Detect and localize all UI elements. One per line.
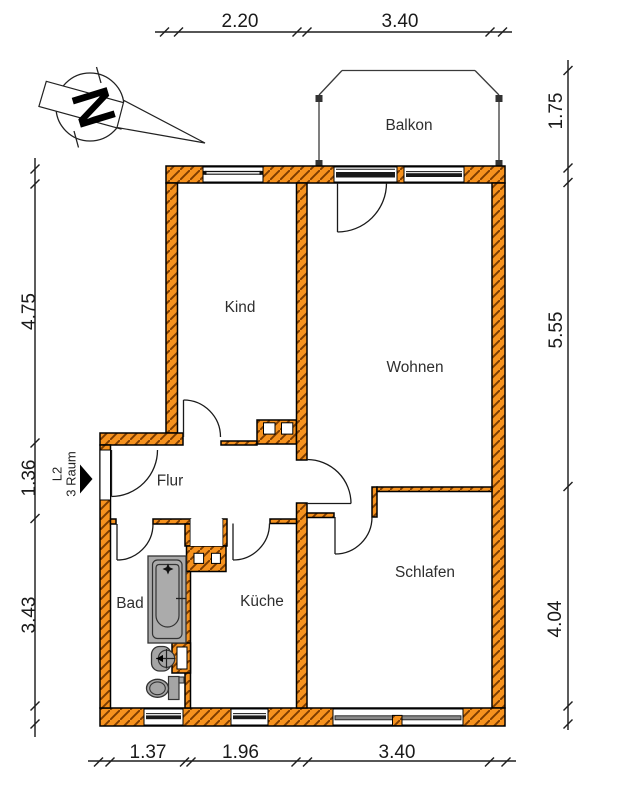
svg-text:Balkon: Balkon [385, 117, 432, 134]
svg-text:Wohnen: Wohnen [386, 359, 443, 376]
svg-text:4.75: 4.75 [19, 293, 40, 330]
svg-text:1.36: 1.36 [19, 460, 40, 497]
svg-text:3.43: 3.43 [19, 597, 40, 634]
svg-text:2.20: 2.20 [222, 11, 259, 32]
svg-text:Küche: Küche [240, 593, 284, 610]
svg-text:1.37: 1.37 [130, 742, 167, 763]
svg-text:1.96: 1.96 [222, 742, 259, 763]
svg-text:Schlafen: Schlafen [395, 564, 455, 581]
svg-text:5.55: 5.55 [546, 312, 567, 349]
svg-text:4.04: 4.04 [545, 600, 566, 637]
svg-text:Bad: Bad [116, 595, 143, 612]
svg-text:3.40: 3.40 [379, 742, 416, 763]
svg-text:1.75: 1.75 [546, 93, 567, 130]
svg-text:3 Raum: 3 Raum [64, 451, 79, 497]
svg-text:3.40: 3.40 [382, 11, 419, 32]
svg-text:Kind: Kind [225, 299, 256, 316]
svg-text:Flur: Flur [157, 473, 184, 490]
svg-text:L2: L2 [50, 467, 65, 481]
